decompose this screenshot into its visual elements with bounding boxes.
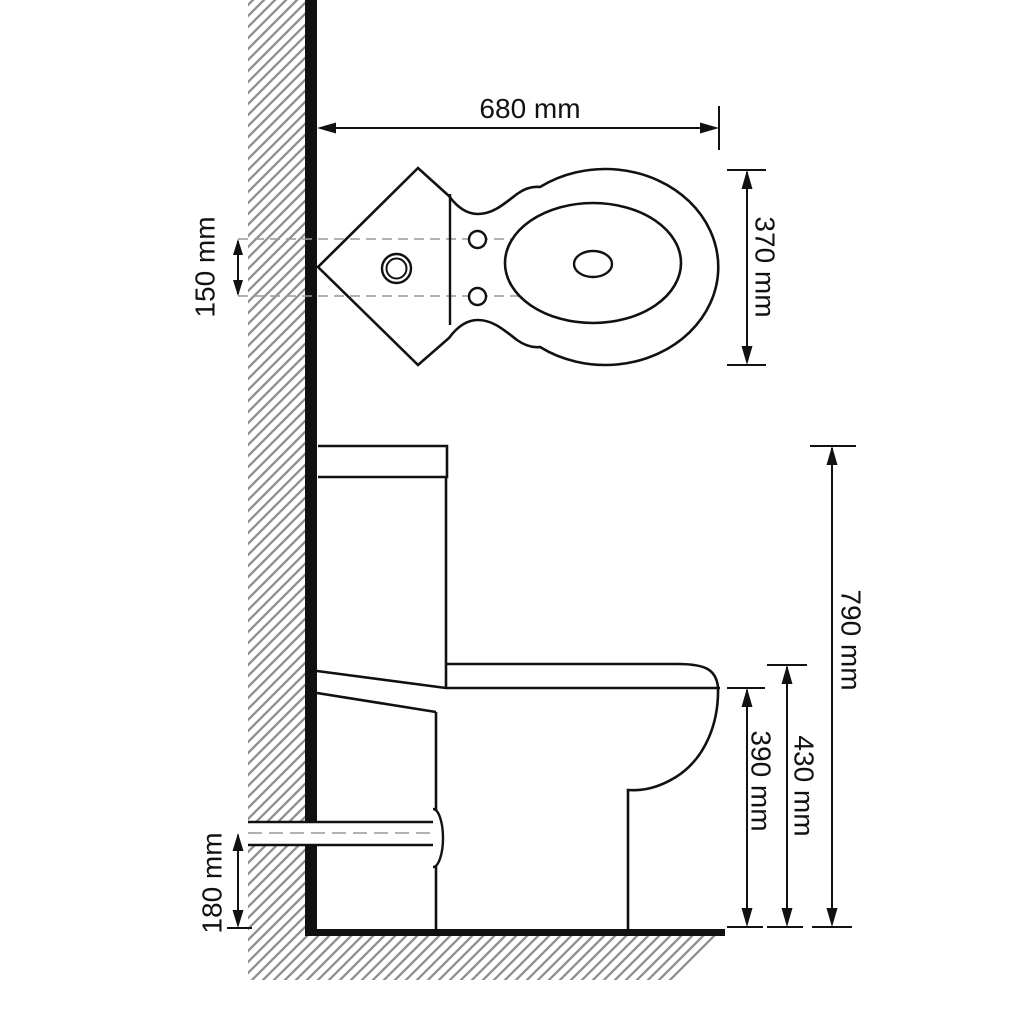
bowl-rim-inner-oval <box>505 203 681 323</box>
dimension-label-790: 790 mm <box>836 589 867 690</box>
bowl-front-curve <box>628 687 718 929</box>
floor-surface-line <box>305 929 725 936</box>
dimension-label-390: 390 mm <box>746 730 777 831</box>
dimension-label-370: 370 mm <box>750 216 781 317</box>
arrowhead-down <box>742 908 753 927</box>
toilet-dimension-diagram: 680 mm 370 mm 150 mm 790 mm <box>0 0 1024 1024</box>
arrowhead-down <box>233 910 244 928</box>
arrowhead-down <box>233 280 243 296</box>
arrowhead-up <box>782 665 793 684</box>
arrowhead-down <box>782 908 793 927</box>
shelf-bottom-slant <box>317 693 436 712</box>
arrowhead-up <box>742 688 753 707</box>
dimension-label-680: 680 mm <box>479 93 580 124</box>
shelf-top-slant <box>317 671 446 688</box>
dimension-outlet-height: 180 mm <box>197 832 253 933</box>
dimension-label-430: 430 mm <box>789 735 820 836</box>
dimension-label-180: 180 mm <box>197 832 228 933</box>
seat-mount-hole-top <box>469 231 486 248</box>
technical-drawing-page: 680 mm 370 mm 150 mm 790 mm <box>0 0 1024 1024</box>
wall-surface-line <box>305 0 317 936</box>
arrowhead-down <box>827 908 838 927</box>
seat-mount-hole-bottom <box>469 288 486 305</box>
seat-top-line <box>446 664 718 687</box>
dimension-bowl-depth: 370 mm <box>727 170 781 365</box>
arrowhead-down <box>742 346 753 365</box>
dimension-top-width: 680 mm <box>317 93 719 150</box>
arrowhead-left <box>317 123 336 134</box>
dimension-inlet-offset: 150 mm <box>190 216 244 317</box>
arrowhead-up <box>827 446 838 465</box>
arrowhead-up <box>742 170 753 189</box>
toilet-side-view <box>248 446 720 929</box>
pipe-end-cap <box>433 809 443 867</box>
arrowhead-up <box>233 239 243 255</box>
floor-hatch <box>305 936 722 980</box>
dimension-bowl-height: 390 mm <box>727 688 777 927</box>
arrowhead-right <box>700 123 719 134</box>
arrowhead-up <box>233 833 244 851</box>
cistern-lid <box>318 446 447 477</box>
dimension-total-height: 790 mm <box>810 446 867 927</box>
dimension-label-150: 150 mm <box>190 216 221 317</box>
